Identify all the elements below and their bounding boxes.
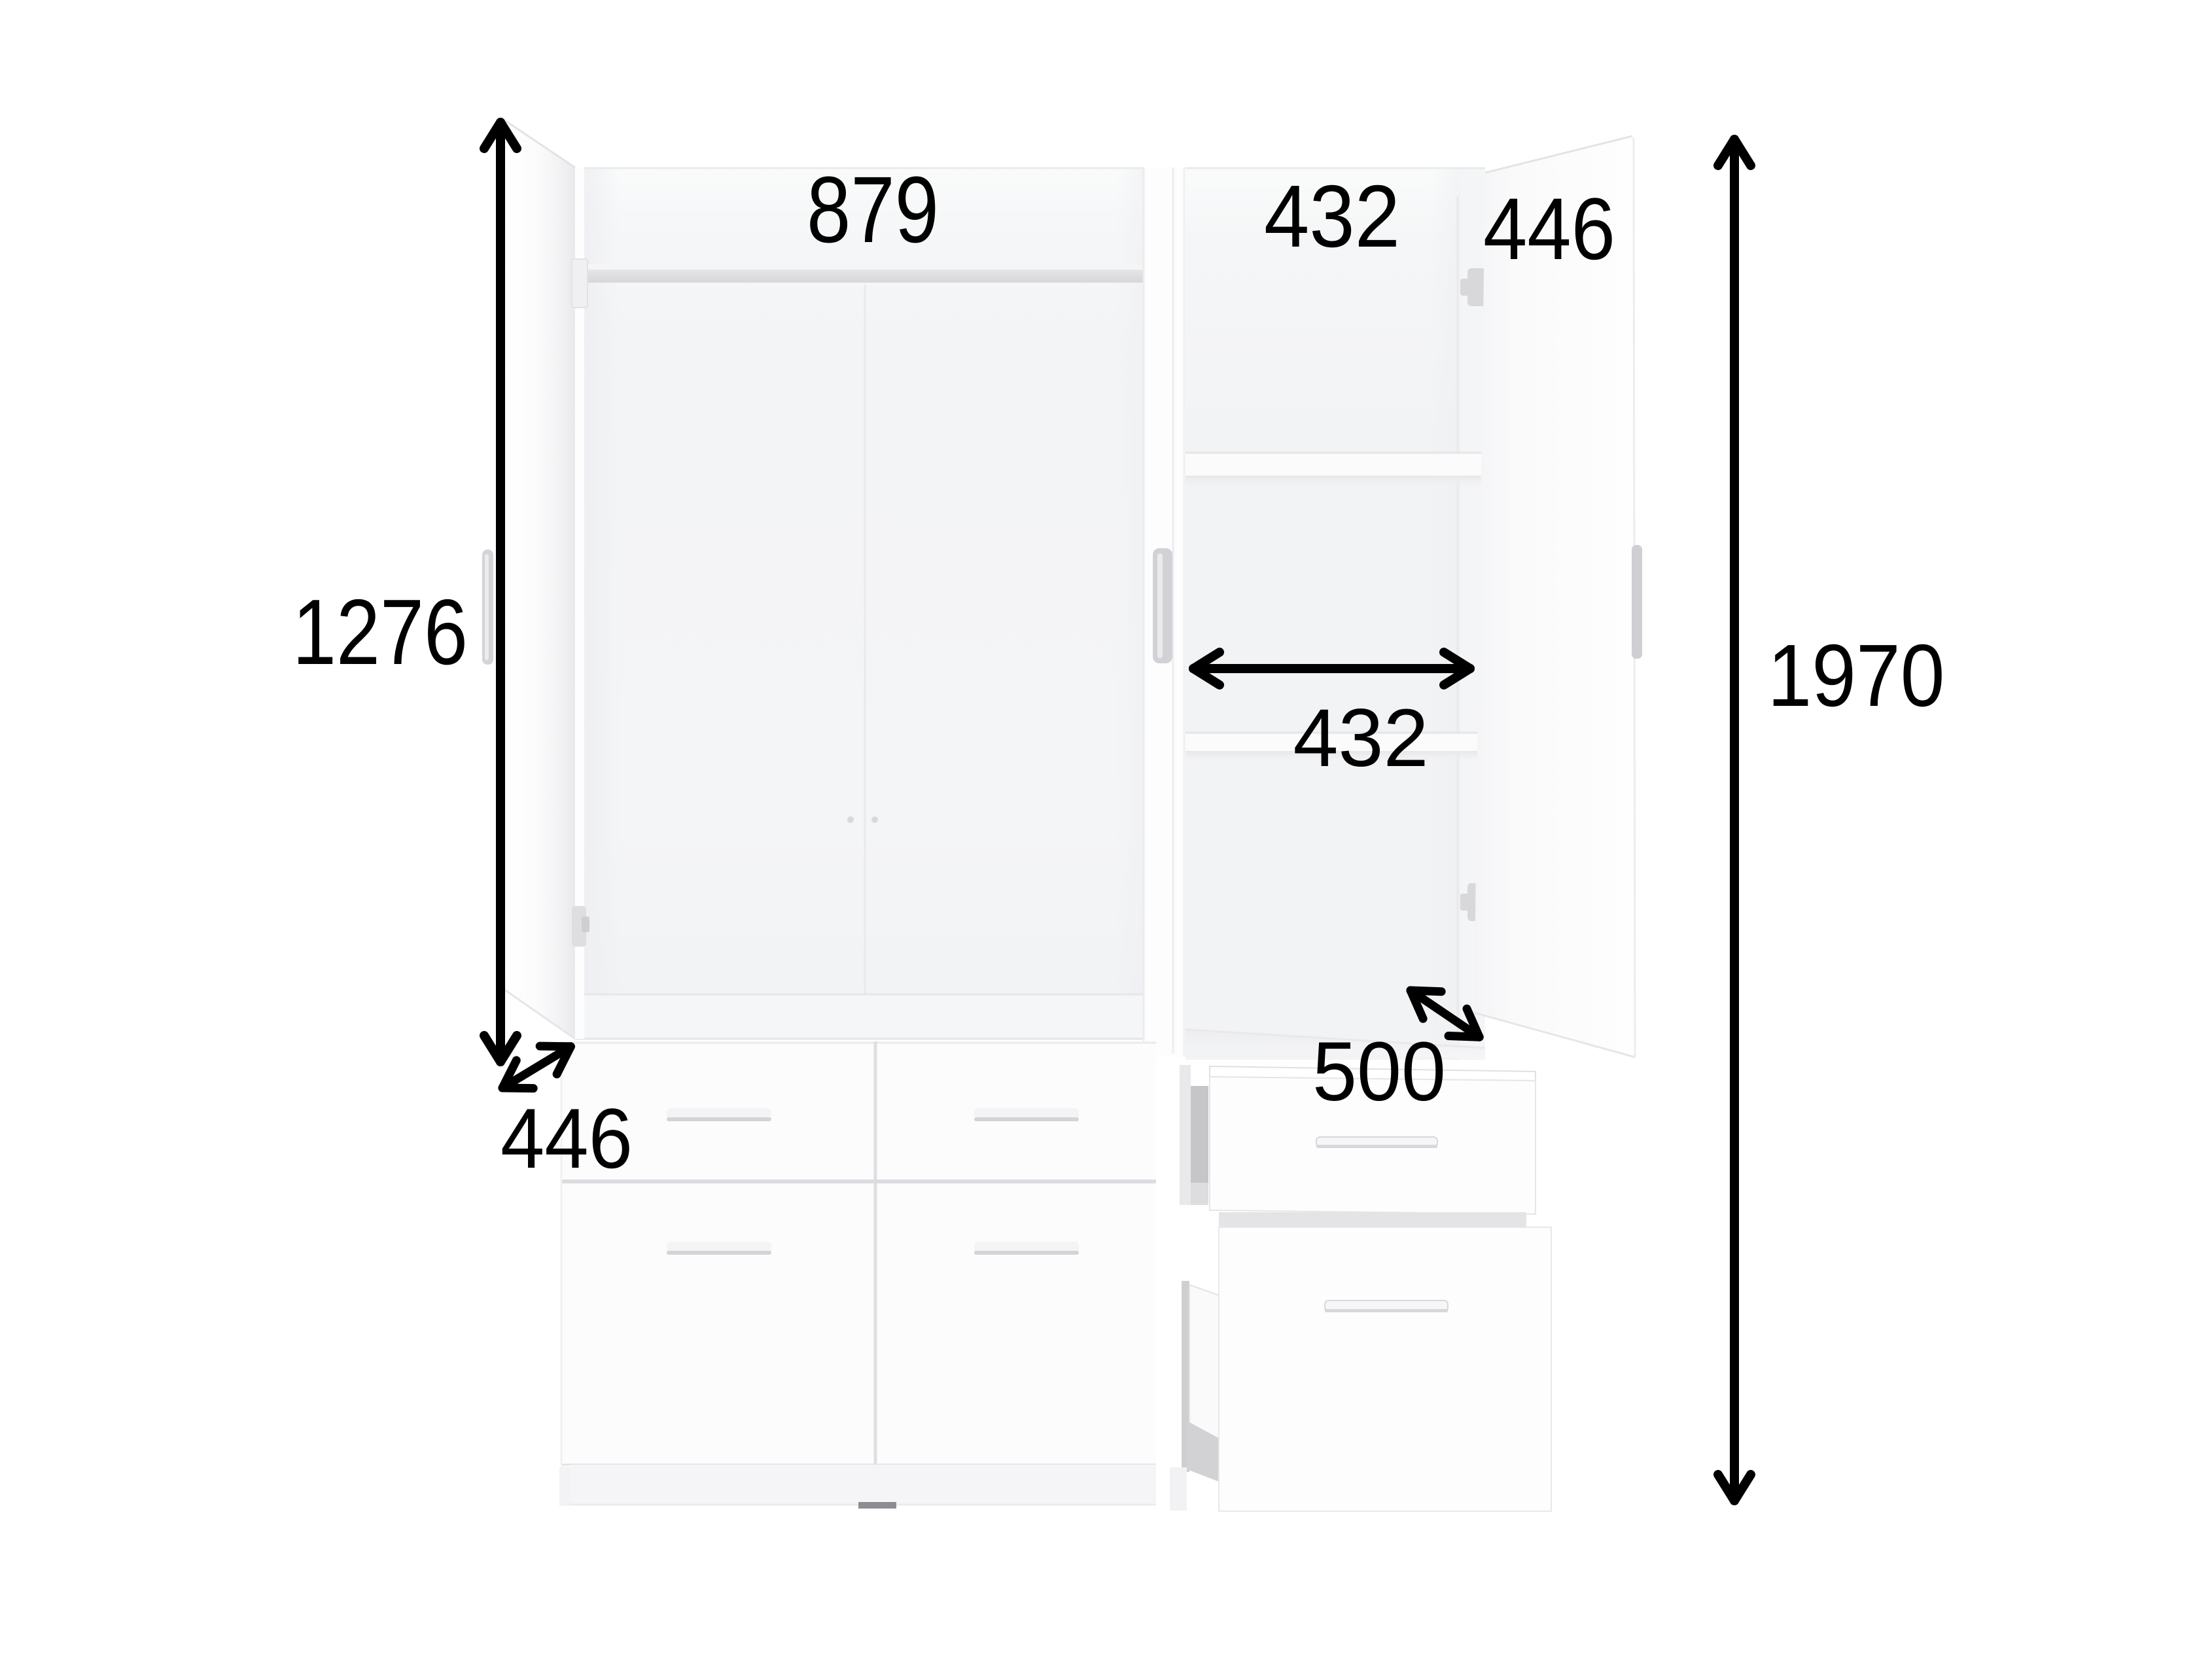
svg-text:432: 432 (1264, 167, 1400, 266)
svg-text:446: 446 (500, 1091, 633, 1186)
svg-text:432: 432 (1293, 693, 1429, 784)
svg-text:879: 879 (807, 157, 939, 262)
svg-text:500: 500 (1312, 1025, 1446, 1119)
svg-text:446: 446 (1483, 181, 1615, 278)
svg-text:1970: 1970 (1768, 626, 1945, 725)
svg-text:1276: 1276 (292, 580, 468, 684)
